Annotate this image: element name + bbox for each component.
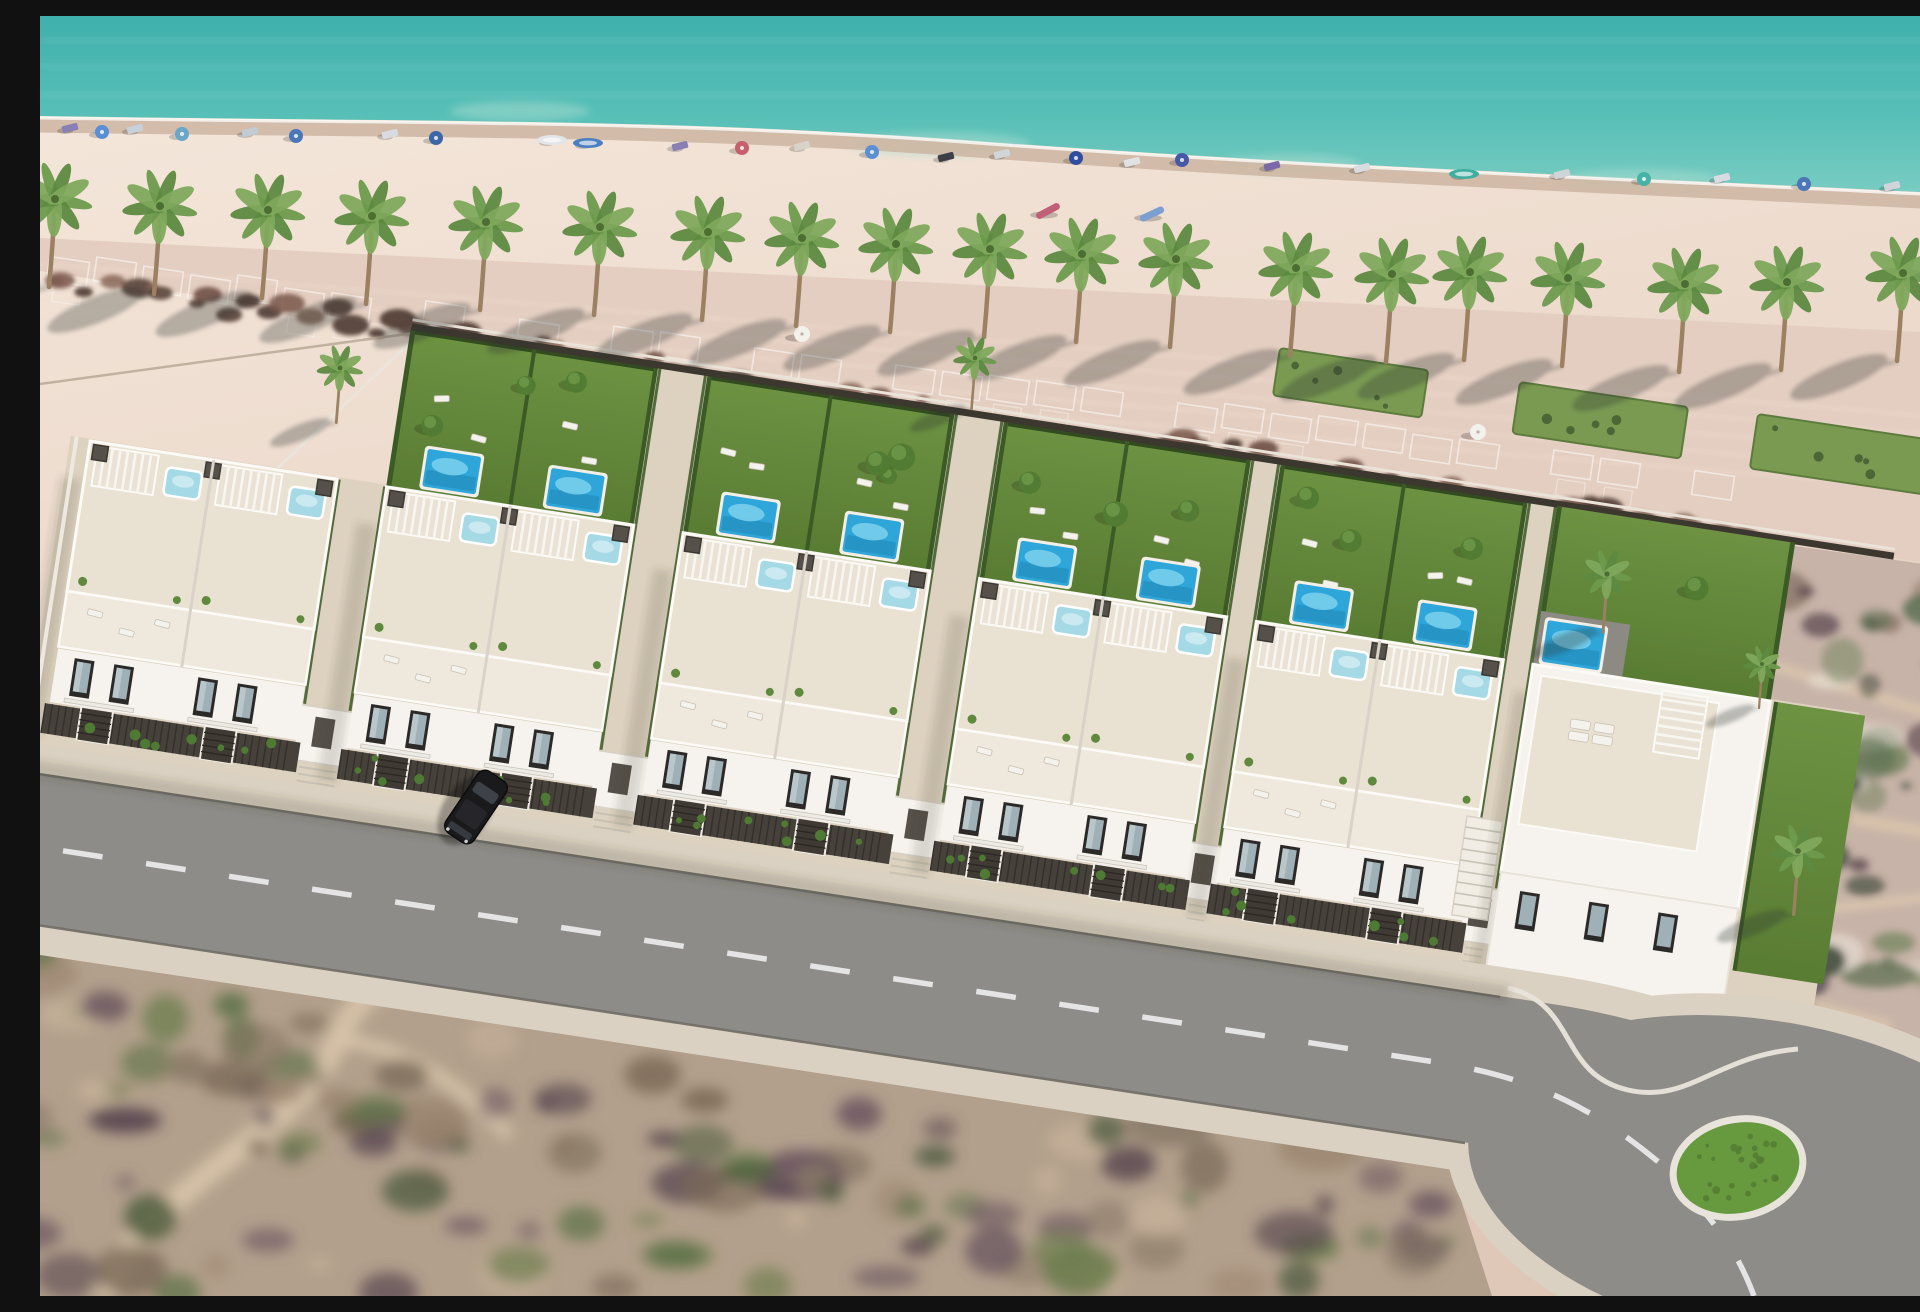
- roof-chimney: [316, 479, 333, 496]
- roof-pergola: [511, 511, 578, 560]
- garden-pool: [419, 445, 485, 498]
- garage-door: [1242, 887, 1279, 925]
- sea-streak: [40, 64, 1920, 69]
- roof-pergola: [808, 557, 875, 606]
- render-canvas: [40, 16, 1920, 1296]
- roof-pergola: [215, 465, 282, 514]
- garden-pool: [1135, 556, 1201, 609]
- garage-door: [200, 726, 237, 764]
- garden-pool: [542, 464, 608, 517]
- aerial-development-render: [40, 16, 1920, 1296]
- rooftop-jacuzzi: [459, 513, 499, 546]
- roof-chimney: [1258, 625, 1275, 642]
- rooftop-jacuzzi: [756, 559, 796, 592]
- roof-chimney: [1205, 617, 1222, 634]
- garden-pool: [1012, 537, 1078, 590]
- roof-chimney: [1482, 660, 1499, 677]
- roof-pergola: [1104, 603, 1171, 652]
- roof-chimney: [981, 582, 998, 599]
- rooftop-jacuzzi: [1052, 605, 1092, 638]
- garden-pool: [839, 510, 905, 563]
- sea-streak: [40, 92, 1920, 97]
- roof-chimney: [909, 571, 926, 588]
- rooftop-jacuzzi: [1329, 648, 1369, 681]
- garden-pool: [1412, 599, 1478, 652]
- garage-door: [1089, 864, 1126, 902]
- garden-pool: [715, 491, 781, 544]
- underwater-sandbar: [450, 101, 590, 121]
- roof-chimney: [91, 445, 108, 462]
- roof-chimney: [388, 490, 405, 507]
- garden-pool: [1288, 580, 1354, 633]
- villa-block: [40, 437, 341, 790]
- roof-chimney: [612, 525, 629, 542]
- rooftop-jacuzzi: [163, 467, 203, 500]
- sea-streak: [40, 38, 1920, 43]
- roof-pergola: [1653, 690, 1708, 758]
- roof-chimney: [684, 536, 701, 553]
- roof-pergola: [1381, 646, 1448, 695]
